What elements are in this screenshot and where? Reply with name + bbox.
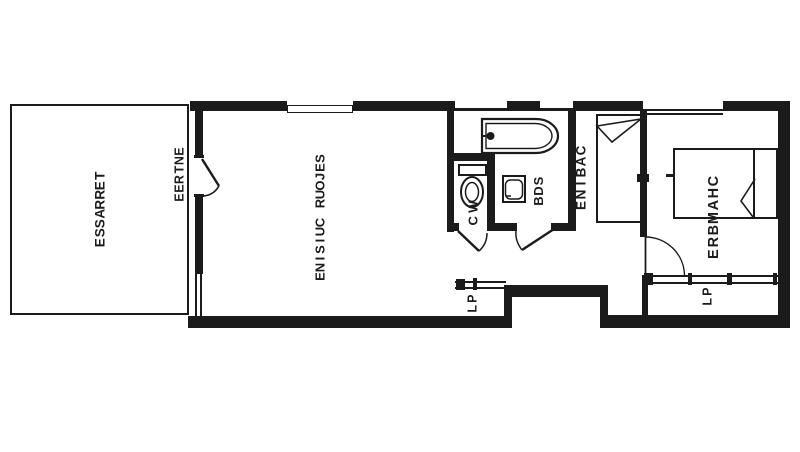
label-char: C [466,211,480,229]
bathtub-faucet [487,132,495,140]
bed-chambre-blanket-fold [741,179,755,217]
label-terrasse: TERRASSE [91,171,109,247]
fixtures-layer [0,0,800,452]
label-char: E [576,197,587,215]
label-chambre: CHAMBRE [705,175,723,260]
label-pl-chambre: PL [698,287,716,306]
label-cabine: CABINE [572,145,590,211]
label-char: E [175,189,184,207]
sink-basin [506,180,523,199]
chambre-door [646,237,685,276]
label-char: E [95,233,105,251]
label-sejour-cuisine: SEJOUR CUISINE [311,154,329,281]
entrance-door [202,159,219,196]
label-char: L [702,292,712,310]
label-sdb: SDB [529,176,547,206]
label-wc: WC [464,200,482,227]
bed-cabine-blanket-fold [597,119,641,142]
label-char: L [467,299,477,317]
sdb-door [516,229,554,250]
label-char: E [708,245,720,263]
label-char: B [533,192,543,210]
bathtub [482,119,558,153]
floor-plan: TERRASSE ENTREE SEJOUR CUISINE WC SDB CA… [0,0,800,452]
label-entree: ENTREE [171,147,189,202]
wc-door [458,231,487,251]
label-pl-couloir: PL [463,294,481,313]
label-char: E [315,268,324,286]
